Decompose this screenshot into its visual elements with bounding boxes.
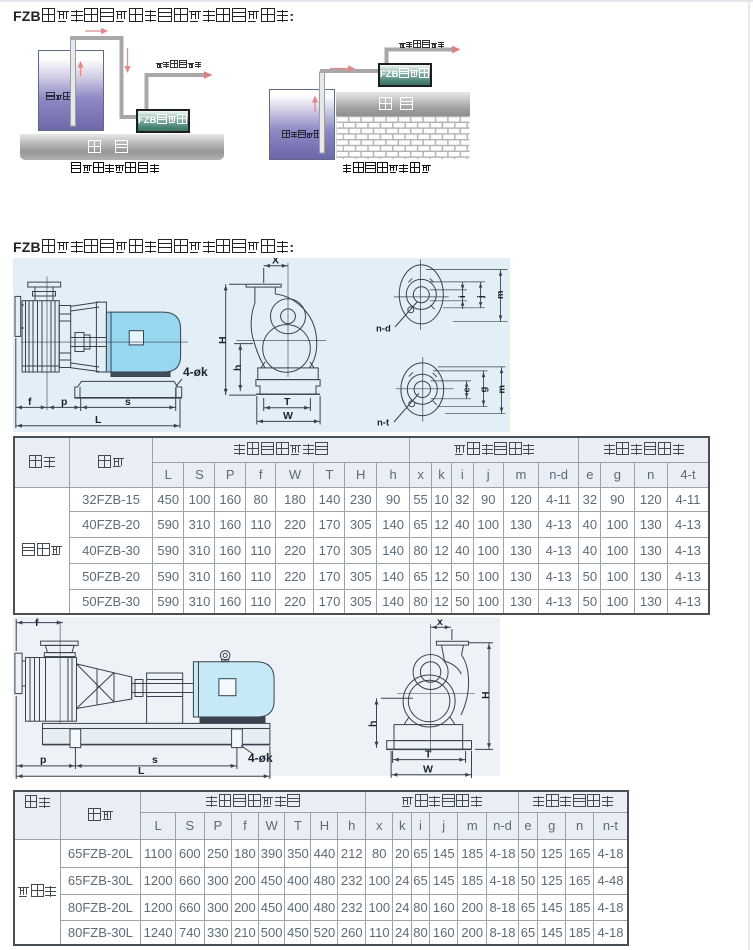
svg-text:W: W bbox=[283, 410, 293, 422]
svg-text:f: f bbox=[28, 396, 32, 408]
svg-text:g: g bbox=[479, 387, 490, 393]
svg-text:e: e bbox=[462, 387, 473, 392]
svg-text:p: p bbox=[40, 754, 46, 766]
svg-text:H: H bbox=[480, 691, 492, 699]
svg-text:i: i bbox=[457, 295, 468, 298]
svg-text:p: p bbox=[61, 396, 67, 408]
svg-text:x: x bbox=[437, 617, 443, 628]
svg-text:s: s bbox=[125, 396, 131, 408]
svg-text:X: X bbox=[272, 258, 279, 267]
svg-text:W: W bbox=[423, 764, 433, 776]
svg-text:L: L bbox=[95, 414, 102, 426]
svg-text:L: L bbox=[138, 765, 145, 777]
svg-text:f: f bbox=[35, 617, 39, 629]
svg-text:m: m bbox=[497, 385, 508, 393]
svg-text:4-øk: 4-øk bbox=[183, 365, 208, 379]
svg-text:s: s bbox=[152, 754, 158, 766]
svg-text:j: j bbox=[476, 295, 487, 299]
svg-text:m: m bbox=[495, 291, 506, 299]
svg-text:n-d: n-d bbox=[376, 324, 391, 335]
svg-text:h: h bbox=[367, 721, 379, 727]
svg-text:T: T bbox=[425, 749, 432, 761]
svg-text:H: H bbox=[217, 336, 229, 344]
svg-text:n-t: n-t bbox=[377, 418, 390, 429]
svg-text:h: h bbox=[232, 365, 244, 371]
svg-text:T: T bbox=[284, 396, 291, 408]
